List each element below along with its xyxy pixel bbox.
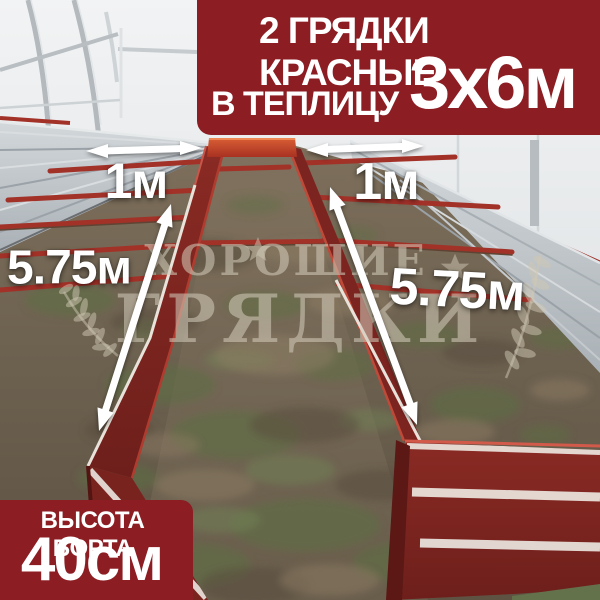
badge-value: 40см bbox=[0, 529, 183, 591]
left-bed-length-label: 5.75м bbox=[7, 241, 131, 296]
banner-size-value: 3х6м bbox=[409, 46, 575, 120]
promo-banner: 2 ГРЯДКИ КРАСНЫЕ В ТЕПЛИЦУ 3х6м bbox=[197, 0, 600, 135]
banner-subtitle: В ТЕПЛИЦУ bbox=[211, 85, 398, 124]
height-badge: ВЫСОТА БОРТА 40см bbox=[0, 500, 193, 600]
left-length-arrow bbox=[98, 204, 173, 431]
product-image: ХОРОШИЕ ГРЯДКИ 1м 1м 5.75м 5.75м bbox=[0, 0, 600, 600]
right-bed-width-label: 1м bbox=[353, 152, 418, 212]
left-bed-width-label: 1м bbox=[105, 152, 168, 210]
right-bed-length-label: 5.75м bbox=[388, 257, 526, 324]
